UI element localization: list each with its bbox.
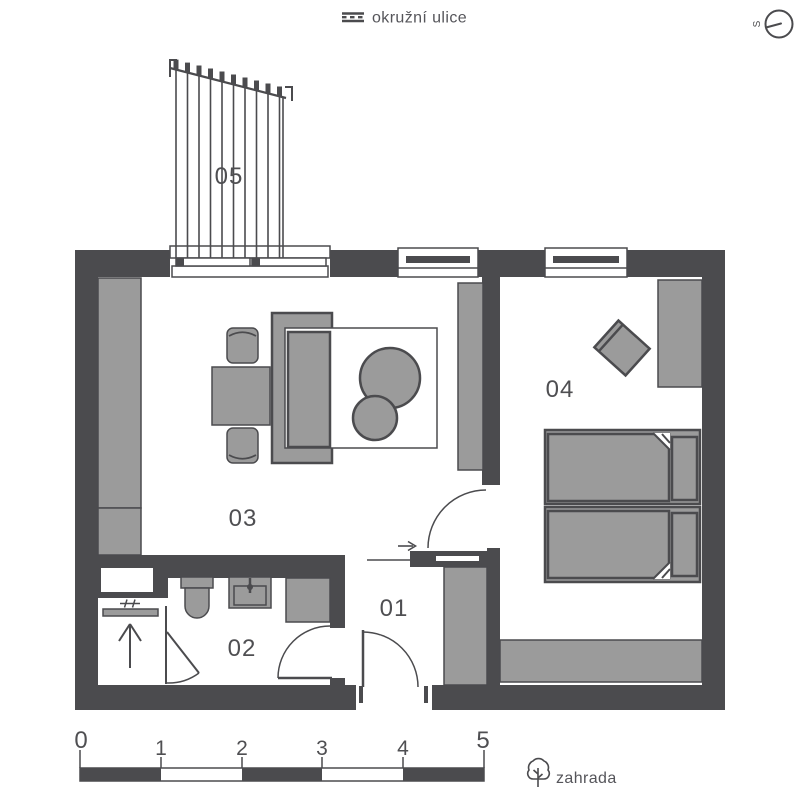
scale-tick-3: 3 xyxy=(316,737,328,760)
shower-door xyxy=(167,632,199,683)
window-bedroom xyxy=(545,248,627,277)
street-lines-icon xyxy=(342,14,364,22)
terrace-edge xyxy=(170,246,330,258)
pergola-sliding-door xyxy=(172,258,328,277)
kitchen-counter-lower xyxy=(98,508,141,555)
hall-closet xyxy=(444,567,487,685)
pillow xyxy=(672,437,697,500)
scale-tick-2: 2 xyxy=(236,737,248,760)
street-label: okružní ulice xyxy=(342,10,467,27)
street-label-text: okružní ulice xyxy=(372,10,467,27)
dining-set xyxy=(212,328,270,463)
coffee-table-small xyxy=(353,396,397,440)
sofa-seat xyxy=(288,332,330,447)
door-swing xyxy=(278,626,330,678)
compass-north-letter: S xyxy=(752,20,763,27)
mattress xyxy=(548,434,669,501)
room-label-hall: 01 xyxy=(380,595,409,622)
pergola-room xyxy=(170,60,330,258)
wall-living-bedroom xyxy=(482,277,500,485)
desk-chair xyxy=(594,321,649,376)
entrance-door xyxy=(356,630,432,710)
garden-label-text: zahrada xyxy=(556,770,617,787)
pergola-beam-ends xyxy=(174,60,283,97)
tree-icon xyxy=(528,759,550,787)
wall-hall-bathroom xyxy=(330,578,345,628)
mattress xyxy=(548,511,669,578)
room-label-bathroom: 02 xyxy=(228,635,257,662)
bedroom-door-swing xyxy=(428,490,486,548)
chair xyxy=(227,328,258,363)
room-label-bedroom: 04 xyxy=(546,376,575,403)
chair xyxy=(227,428,258,463)
scale-tick-1: 1 xyxy=(155,737,167,760)
scale-bar: 0 1 2 3 4 5 xyxy=(74,727,489,781)
slope-arrow xyxy=(119,624,141,668)
bathroom-door xyxy=(278,626,332,678)
wardrobe-living xyxy=(458,283,483,470)
floor-plan: okružní ulice S xyxy=(0,0,800,800)
room-label-living: 03 xyxy=(229,505,258,532)
door-swing xyxy=(363,632,418,687)
scale-tick-5: 5 xyxy=(476,727,489,754)
living-room xyxy=(98,278,483,555)
garden-label: zahrada xyxy=(528,759,617,787)
pergola-bracket-right xyxy=(285,87,292,101)
shower xyxy=(103,600,199,685)
washing-machine xyxy=(286,578,330,622)
window-living-room xyxy=(398,248,478,277)
wall-above-bathroom xyxy=(168,555,345,578)
sink xyxy=(229,577,271,608)
wardrobe-bedroom xyxy=(658,280,702,387)
shower-drain xyxy=(103,609,158,616)
low-cabinet xyxy=(500,640,702,682)
shower-head-symbol xyxy=(120,600,140,608)
bed xyxy=(545,430,700,504)
room-label-pergola: 05 xyxy=(215,163,244,190)
dining-table xyxy=(212,367,270,425)
kitchen-counter xyxy=(98,278,141,508)
scale-tick-4: 4 xyxy=(397,737,409,760)
wall-hall-bedroom xyxy=(487,548,500,685)
compass-icon: S xyxy=(752,11,793,38)
wall-niche xyxy=(101,568,153,592)
toilet xyxy=(181,577,213,618)
pillow xyxy=(672,513,697,576)
bed xyxy=(545,507,700,582)
scale-tick-0: 0 xyxy=(74,727,87,754)
